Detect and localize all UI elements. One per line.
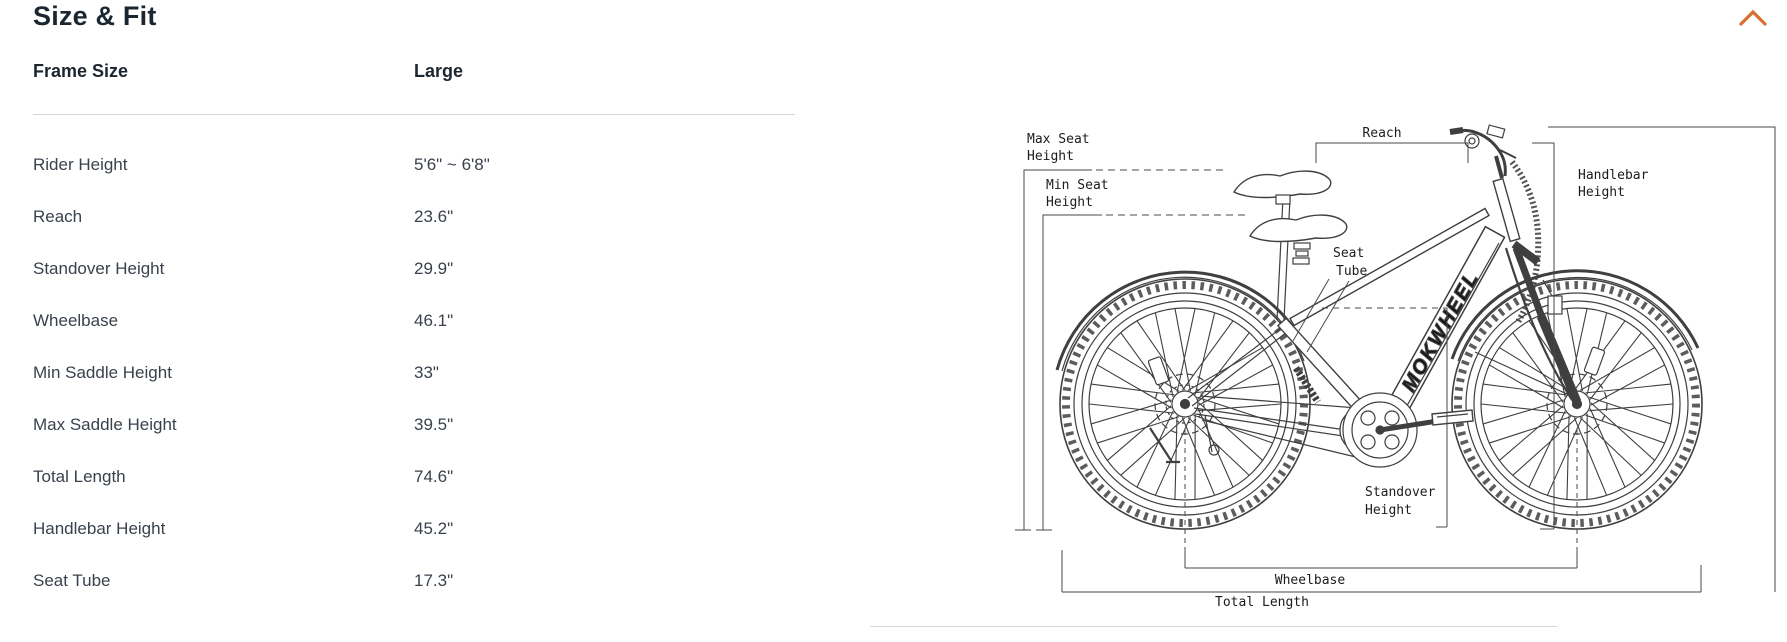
brand-logo-text: MOKWHEEL (1398, 267, 1484, 395)
spec-value: 17.3" (414, 571, 453, 591)
spec-value: 33" (414, 363, 439, 383)
collapse-chevron-up-icon[interactable] (1738, 8, 1768, 28)
spec-row-max-saddle-height: Max Saddle Height 39.5" (33, 399, 795, 451)
spec-value: 39.5" (414, 415, 453, 435)
spec-label: Standover Height (33, 259, 414, 279)
display (1487, 125, 1505, 138)
min-seat-height-label: Min Seat (1046, 178, 1109, 193)
spec-value: 5'6" ~ 6'8" (414, 155, 490, 175)
crankset (1340, 393, 1473, 467)
grip (1450, 130, 1463, 132)
spec-label: Handlebar Height (33, 519, 414, 539)
frame-size-header: Frame Size (33, 61, 414, 82)
diagram-labels: Max Seat Height Min Seat Height Reach Ha… (1027, 126, 1649, 610)
spec-value: 23.6" (414, 207, 453, 227)
spec-row-handlebar-height: Handlebar Height 45.2" (33, 503, 795, 555)
bike-geometry-diagram: MOKWHEEL (870, 95, 1787, 630)
spec-row-reach: Reach 23.6" (33, 191, 795, 243)
frame-size-value-header: Large (414, 61, 463, 82)
spec-label: Rider Height (33, 155, 414, 175)
spec-value: 45.2" (414, 519, 453, 539)
spec-row-total-length: Total Length 74.6" (33, 451, 795, 503)
standover-height-label-2: Height (1365, 503, 1412, 518)
spec-value: 74.6" (414, 467, 453, 487)
saddle-min-position (1250, 215, 1347, 241)
total-length-label: Total Length (1215, 595, 1309, 610)
headlight (1548, 296, 1562, 314)
spec-row-min-saddle-height: Min Saddle Height 33" (33, 347, 795, 399)
max-seat-height-label: Max Seat (1027, 132, 1090, 147)
handlebar-height-label: Handlebar (1578, 168, 1649, 183)
spec-label: Wheelbase (33, 311, 414, 331)
size-fit-section: Size & Fit Frame Size Large Rider Height… (0, 0, 1787, 642)
spec-label: Seat Tube (33, 571, 414, 591)
spec-label: Reach (33, 207, 414, 227)
head-tube (1493, 179, 1520, 242)
spec-label: Min Saddle Height (33, 363, 414, 383)
page-title: Size & Fit (33, 0, 157, 32)
bell (1465, 134, 1479, 148)
wheelbase-label: Wheelbase (1275, 573, 1346, 588)
saddle-max-position (1234, 171, 1331, 197)
size-spec-table: Frame Size Large Rider Height 5'6" ~ 6'8… (33, 57, 795, 607)
pedal (1432, 410, 1473, 425)
spec-label: Total Length (33, 467, 414, 487)
front-wheel (1452, 279, 1702, 529)
table-header-row: Frame Size Large (33, 57, 795, 85)
spec-value: 29.9" (414, 259, 453, 279)
rear-wheel (1060, 279, 1310, 529)
spec-value: 46.1" (414, 311, 453, 331)
seat-tube-label: Seat (1333, 246, 1364, 261)
standover-height-label: Standover (1365, 485, 1436, 500)
dimension-lines (1015, 127, 1775, 592)
min-seat-height-label-2: Height (1046, 195, 1093, 210)
saddle-clamp-upper (1276, 195, 1290, 204)
seat-tube-label-2: Tube (1336, 264, 1367, 279)
spec-row-standover-height: Standover Height 29.9" (33, 243, 795, 295)
handlebar-height-label-2: Height (1578, 185, 1625, 200)
diagram-bottom-divider (870, 626, 1557, 627)
max-seat-height-label-2: Height (1027, 149, 1074, 164)
spec-rows: Rider Height 5'6" ~ 6'8" Reach 23.6" Sta… (33, 115, 795, 607)
spec-row-wheelbase: Wheelbase 46.1" (33, 295, 795, 347)
spec-row-rider-height: Rider Height 5'6" ~ 6'8" (33, 139, 795, 191)
reach-label: Reach (1362, 126, 1401, 141)
stem (1496, 156, 1502, 178)
spec-label: Max Saddle Height (33, 415, 414, 435)
spec-row-seat-tube: Seat Tube 17.3" (33, 555, 795, 607)
